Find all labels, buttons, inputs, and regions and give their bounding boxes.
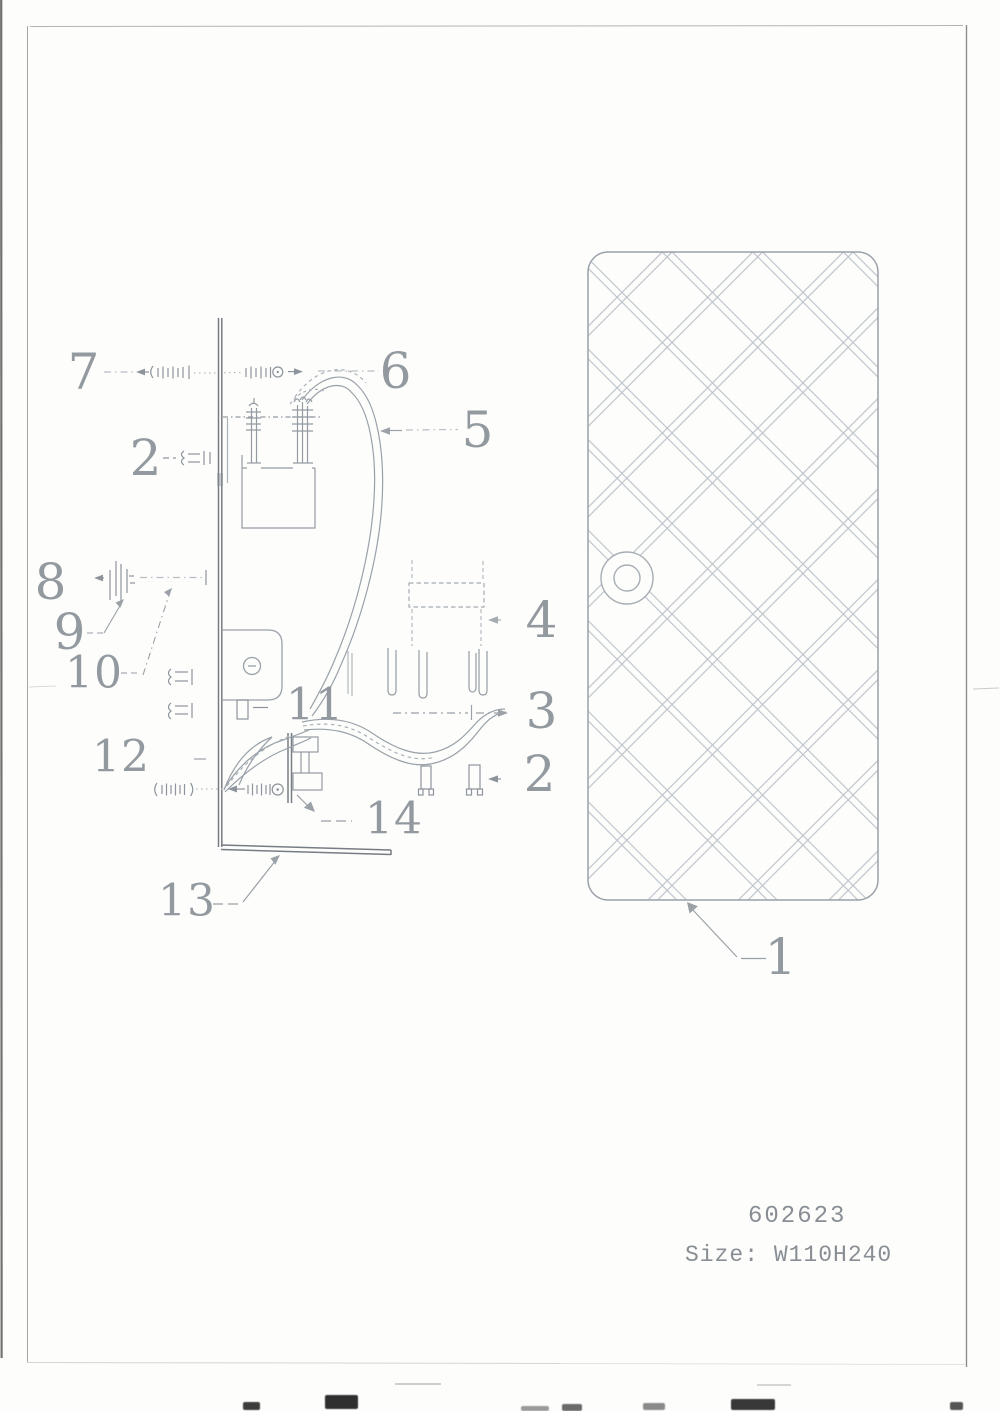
- bottom-screw-left: [155, 783, 224, 796]
- wall-plug-icon-upper: [163, 451, 210, 465]
- scan-artifact: [757, 1384, 791, 1386]
- size-label: Size: W110H240: [685, 1242, 892, 1268]
- mounting-screw-right: [224, 367, 379, 379]
- callout-12: 12: [92, 732, 150, 783]
- mounting-screw-left: [104, 366, 216, 380]
- callout-2-upper: 2: [130, 429, 163, 487]
- callout-10: 10: [65, 648, 123, 699]
- scan-artifact: [243, 1402, 260, 1410]
- callout-5-leader: [380, 427, 458, 435]
- scan-artifact: [731, 1399, 775, 1410]
- tube-pins: [348, 648, 487, 698]
- scan-artifact: [325, 1395, 358, 1409]
- lattice-panel: [588, 252, 878, 900]
- wall-plate: [217, 318, 391, 855]
- bottom-screw-right: [228, 784, 283, 796]
- keyhole-tab: [222, 630, 282, 700]
- scan-artifact: [643, 1403, 665, 1410]
- panel-hanging-hole: [601, 552, 653, 604]
- scan-artifact: [521, 1406, 549, 1411]
- clip-icon: [237, 700, 268, 719]
- callout-1-leader: [687, 902, 766, 959]
- callout-13: 13: [158, 876, 216, 927]
- callout-14: 14: [365, 794, 423, 845]
- callout-11: 11: [286, 680, 344, 731]
- callout-7: 7: [68, 343, 101, 401]
- scan-artifact: [562, 1404, 582, 1411]
- socket-outline: [409, 560, 501, 646]
- callout-10-leader: [121, 588, 172, 675]
- wall-plug-icon-mid-b: [169, 703, 193, 719]
- callout-4: 4: [526, 591, 559, 649]
- ballast-box: [223, 397, 322, 528]
- scan-artifact: [950, 1402, 963, 1410]
- wall-plug-icon-mid-a: [169, 669, 193, 685]
- callout-9-leader: [87, 599, 124, 633]
- assembly-diagram-linework: [0, 0, 1000, 1411]
- part-number: 602623: [748, 1203, 846, 1230]
- callout-6: 6: [380, 342, 413, 400]
- callout-2-lower: 2: [524, 745, 557, 803]
- callout-1: 1: [765, 928, 798, 986]
- scanned-instruction-page: 7 6 5 2 8 9 10 11 12 4 3 2 14 13 1 60262…: [0, 0, 1000, 1411]
- callout-5: 5: [462, 401, 495, 459]
- scan-artifact: [395, 1383, 441, 1385]
- lamp-base-icons: [419, 765, 502, 795]
- callout-14-leader: [297, 795, 352, 821]
- callout-13-leader: [213, 855, 280, 904]
- anchor-screw-icon: [94, 561, 206, 603]
- callout-3: 3: [526, 682, 559, 740]
- clamp-plate: [288, 733, 322, 803]
